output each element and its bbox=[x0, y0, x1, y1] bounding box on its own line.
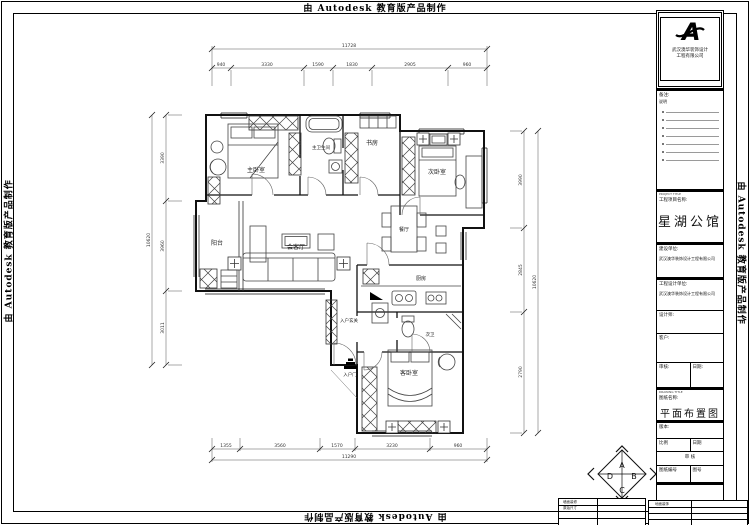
client-field: 客户: bbox=[657, 333, 723, 362]
build-unit-section: 建设单位: 武汉澳华装饰设计工程有限公司 bbox=[657, 245, 723, 277]
note-line bbox=[666, 112, 719, 113]
dim-left-seg: 3960 bbox=[160, 240, 166, 252]
dim-bottom-seg: 960 bbox=[454, 443, 463, 449]
room-label-study: 书房 bbox=[366, 139, 378, 147]
dim-right-seg: 3990 bbox=[518, 174, 524, 186]
note-line bbox=[666, 136, 719, 137]
note-line bbox=[666, 128, 719, 129]
room-label-bedroom2: 次卧室 bbox=[428, 168, 446, 176]
dim-bottom-seg: 3560 bbox=[274, 443, 286, 449]
project-section: PROJECT TITLE 工程项目名称: 星湖公馆 bbox=[657, 192, 723, 242]
room-label-master-bath: 主卫生间 bbox=[312, 144, 330, 151]
audit-label: 审核: bbox=[657, 363, 690, 387]
dim-bottom-seg: 3230 bbox=[386, 443, 398, 449]
scale-date-row: 比例 日期 bbox=[657, 438, 723, 451]
design-unit-section: 工程设计单位: 武汉澳华装饰设计工程有限公司 bbox=[657, 280, 723, 310]
sheet-no-label: 图号 bbox=[690, 466, 724, 482]
date-label: 日期: bbox=[690, 363, 724, 387]
notes-section: 备注: 说明 bbox=[657, 91, 723, 189]
note-line bbox=[666, 144, 719, 145]
note-line bbox=[666, 152, 719, 153]
room-label-living: 会客厅 bbox=[287, 243, 305, 251]
version-field: 版本: bbox=[657, 423, 723, 438]
room-label-guest: 客卧室 bbox=[400, 369, 418, 377]
separator-bar bbox=[656, 482, 724, 485]
footer-table-right: 地面装饰 bbox=[648, 500, 748, 525]
drawing-sheet: 由 Autodesk 教育版产品制作 由 Autodesk 教育版产品制作 由 … bbox=[0, 0, 750, 525]
audit-date-row: 审核: 日期: bbox=[657, 362, 723, 387]
drawing-title-section: DRAWING TITLE 图纸名称: 平面布置图 bbox=[657, 390, 723, 420]
dim-top-seg: 3330 bbox=[261, 62, 273, 68]
dim-top-seg: 2905 bbox=[404, 62, 416, 68]
design-unit-value: 武汉澳华装饰设计工程有限公司 bbox=[657, 287, 723, 297]
scale-label: 比例 bbox=[657, 439, 690, 451]
room-label-balcony: 阳台 bbox=[211, 239, 223, 247]
compass-a: A bbox=[619, 461, 625, 470]
dim-left-total: 10620 bbox=[146, 233, 152, 247]
notes-label: 备注: bbox=[657, 91, 723, 98]
date2-label: 日期 bbox=[690, 439, 724, 451]
dim-bottom-total: 11290 bbox=[342, 454, 356, 460]
project-name: 星湖公馆 bbox=[657, 211, 723, 230]
review-field: 审 核 bbox=[657, 451, 723, 465]
dim-top-total: 11728 bbox=[342, 43, 356, 49]
compass-c: C bbox=[619, 486, 625, 495]
number-row: 图纸编号 图号 bbox=[657, 465, 723, 482]
drawing-name: 平面布置图 bbox=[657, 405, 723, 420]
version-label: 版本: bbox=[657, 423, 723, 430]
dim-top-seg: 1830 bbox=[346, 62, 358, 68]
dimension-lines bbox=[149, 46, 541, 463]
dim-left-seg: 3390 bbox=[160, 152, 166, 164]
designer-label: 设计师: bbox=[657, 311, 723, 318]
room-label-entry: 入户门 bbox=[343, 371, 357, 378]
dim-bottom-seg: 1355 bbox=[220, 443, 232, 449]
dim-top-seg: 1590 bbox=[312, 62, 324, 68]
room-label-kitchen: 厨房 bbox=[416, 275, 426, 282]
balcony-divider bbox=[239, 201, 243, 291]
title-block: A 武汉澳华装饰设计 工程有限公司 备注: 说明 PROJECT TITLE 工… bbox=[656, 10, 724, 502]
dim-right-seg: 2790 bbox=[518, 366, 524, 378]
note-line bbox=[666, 120, 719, 121]
logo-a-icon: A bbox=[673, 18, 707, 46]
client-label: 客户: bbox=[657, 334, 723, 341]
design-unit-label: 工程设计单位: bbox=[657, 280, 723, 287]
entry-door-icon bbox=[344, 359, 357, 370]
footer-left-label-1: 墙面装修 bbox=[563, 500, 577, 504]
note-line bbox=[666, 160, 719, 161]
compass-icon: A B C D bbox=[588, 446, 656, 502]
logo-company-line2: 工程有限公司 bbox=[661, 54, 719, 60]
room-label-bath2: 次卫 bbox=[426, 331, 435, 338]
windows bbox=[194, 113, 487, 436]
room-label-dining: 餐厅 bbox=[399, 226, 409, 233]
company-logo-box: A 武汉澳华装饰设计 工程有限公司 bbox=[658, 12, 722, 87]
notes-sublabel: 说明 bbox=[657, 98, 723, 105]
dim-right-total: 10620 bbox=[532, 275, 538, 289]
build-unit-label: 建设单位: bbox=[657, 245, 723, 252]
footer-left-label-2: 原始尺寸 bbox=[563, 506, 577, 510]
compass-b: B bbox=[631, 472, 637, 481]
dim-top-seg: 940 bbox=[217, 62, 226, 68]
dim-left-seg: 3011 bbox=[160, 322, 166, 334]
drawing-title-label: 图纸名称: bbox=[657, 394, 723, 401]
project-title-label: 工程项目名称: bbox=[657, 196, 723, 203]
dim-right-seg: 2845 bbox=[518, 264, 524, 276]
drawing-no-label: 图纸编号 bbox=[657, 466, 690, 482]
build-unit-value: 武汉澳华装饰设计工程有限公司 bbox=[657, 252, 723, 262]
footer-right-label-1: 地面装饰 bbox=[655, 502, 669, 506]
room-label-foyer: 入户玄关 bbox=[340, 317, 358, 324]
compass-d: D bbox=[607, 472, 613, 481]
floor-plan: 主卧室 主卫生间 书房 次卧室 阳台 会客厅 餐厅 厨房 入户玄关 次卫 客卧室… bbox=[0, 0, 750, 525]
designer-field: 设计师: bbox=[657, 310, 723, 333]
dim-top-seg: 960 bbox=[463, 62, 472, 68]
footer-table-left: 墙面装修 原始尺寸 bbox=[558, 498, 646, 525]
room-label-master: 主卧室 bbox=[247, 166, 265, 174]
dim-bottom-seg: 1570 bbox=[331, 443, 343, 449]
review-label: 审 核 bbox=[685, 455, 695, 460]
